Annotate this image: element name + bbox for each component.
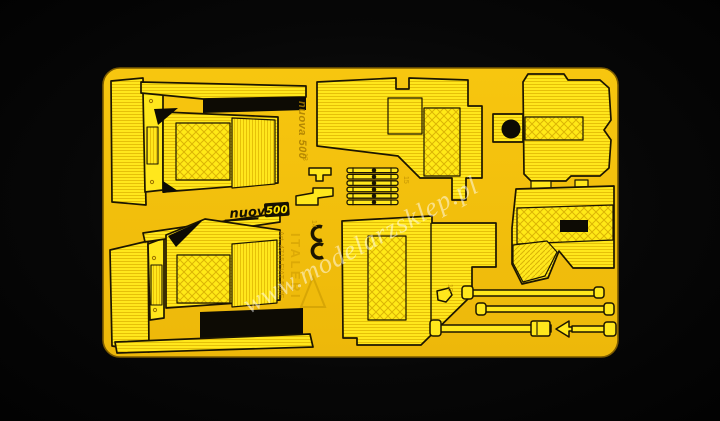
logo-box-text: 500 [266, 204, 289, 217]
etched-part-number: 14 [310, 220, 317, 228]
etched-part-number: 15 [402, 176, 409, 184]
etched-brand-vertical: nuova 500 [296, 101, 308, 160]
etched-part-number: 13 [301, 153, 308, 161]
fret-photo-canvas: nuova 500 ITALERI Art. 4715 FIAT 500F 13… [0, 0, 720, 421]
etched-slot [560, 220, 588, 232]
etched-part-number: 10 [446, 284, 453, 292]
etched-hole [502, 120, 521, 139]
photo-etch-product-photo: nuova 500 ITALERI Art. 4715 FIAT 500F 13… [0, 0, 720, 421]
